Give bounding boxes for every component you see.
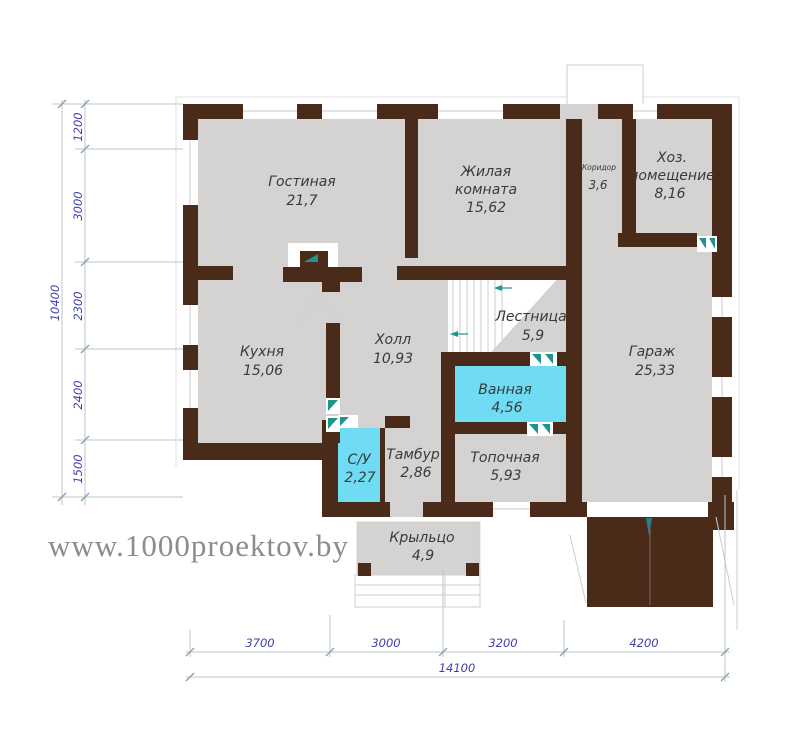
room-area-koridor: 3,6 [588, 178, 607, 192]
room-area-garazh: 25,33 [635, 363, 675, 379]
entrance-canopy [567, 65, 643, 105]
room-label-vannaya: Ванная [478, 382, 532, 398]
dim-label: 3700 [245, 636, 274, 650]
room-label-zhilaya-2: комната [455, 182, 517, 198]
room-label-khoz-2: помещение [629, 168, 715, 184]
room-area-kukhnya: 15,06 [243, 363, 283, 379]
room-label-su: С/У [347, 452, 371, 468]
floor-plan-canvas: 1200 3000 2300 2400 1500 10400 3700 3000… [0, 0, 800, 741]
porch-steps [355, 575, 480, 607]
dim-label: 3000 [371, 636, 400, 650]
door-icon [530, 352, 557, 366]
dimension-vertical: 1200 3000 2300 2400 1500 10400 [48, 100, 183, 505]
room-area-su: 2,27 [344, 470, 375, 486]
room-label-tambur: Тамбур [386, 447, 440, 463]
dim-label: 2400 [71, 380, 85, 409]
dim-label: 1500 [71, 454, 85, 483]
door-icon [338, 415, 358, 428]
room-area-lestnitsa: 5,9 [522, 328, 544, 344]
dim-label: 3200 [488, 636, 517, 650]
room-label-zhilaya: Жилая [460, 164, 511, 180]
dim-label: 3000 [71, 191, 85, 220]
dim-total-label: 10400 [48, 285, 62, 322]
room-label-kholl: Холл [374, 332, 411, 348]
fireplace [288, 243, 338, 267]
room-label-koridor: Коридор [582, 163, 616, 172]
room-area-vannaya: 4,56 [491, 400, 522, 416]
dim-label: 4200 [629, 636, 658, 650]
room-area-gostinaya: 21,7 [286, 193, 317, 209]
room-label-topochnaya: Топочная [470, 450, 539, 466]
room-label-lestnitsa: Лестница [494, 309, 566, 325]
room-area-kryltso: 4,9 [412, 548, 434, 564]
room-area-topochnaya: 5,93 [490, 468, 521, 484]
door-icon [697, 236, 717, 252]
room-label-khoz: Хоз. [656, 150, 687, 166]
room-label-kryltso: Крыльцо [389, 530, 454, 546]
porch-column [466, 563, 479, 576]
room-area-zhilaya: 15,62 [466, 200, 506, 216]
dim-total-label: 14100 [439, 661, 476, 675]
dim-label: 2300 [71, 291, 85, 320]
door-icon [527, 422, 553, 436]
room-area-kholl: 10,93 [373, 351, 413, 367]
porch-column [358, 563, 371, 576]
room-area-khoz: 8,16 [654, 186, 685, 202]
floor-plan-page: 1200 3000 2300 2400 1500 10400 3700 3000… [0, 0, 800, 741]
room-area-tambur: 2,86 [400, 465, 431, 481]
room-label-kukhnya: Кухня [240, 344, 284, 360]
room-label-garazh: Гараж [629, 344, 676, 360]
watermark: www.1000proektov.by [48, 528, 349, 563]
dim-label: 1200 [71, 112, 85, 141]
room-label-gostinaya: Гостиная [268, 174, 335, 190]
